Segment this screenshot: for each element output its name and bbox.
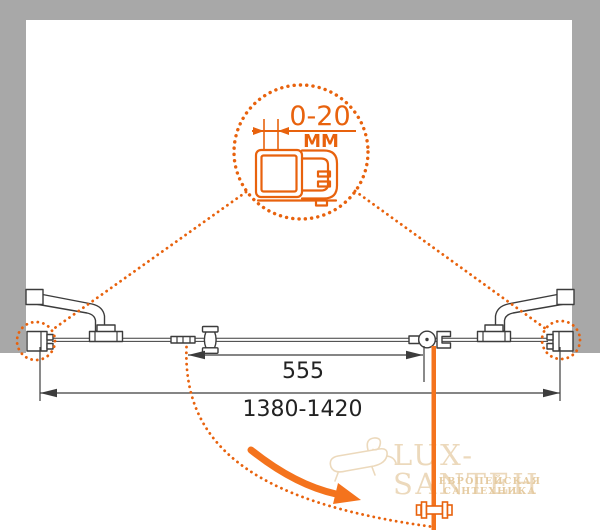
detail-range-label: 0-20 <box>282 103 358 130</box>
bathtub-logo-icon <box>327 436 399 488</box>
shower-door-technical-drawing: LUX-SANTEH ЕВРОПЕЙСКАЯ САНТЕХНИКА <box>0 0 600 530</box>
door-width-dimension-label: 555 <box>253 361 353 383</box>
watermark-tagline: ЕВРОПЕЙСКАЯ САНТЕХНИКА <box>400 477 580 496</box>
detail-unit-label: ММ <box>296 133 346 151</box>
watermark: LUX-SANTEH ЕВРОПЕЙСКАЯ САНТЕХНИКА <box>0 0 600 530</box>
overall-width-dimension-label: 1380-1420 <box>240 399 365 421</box>
